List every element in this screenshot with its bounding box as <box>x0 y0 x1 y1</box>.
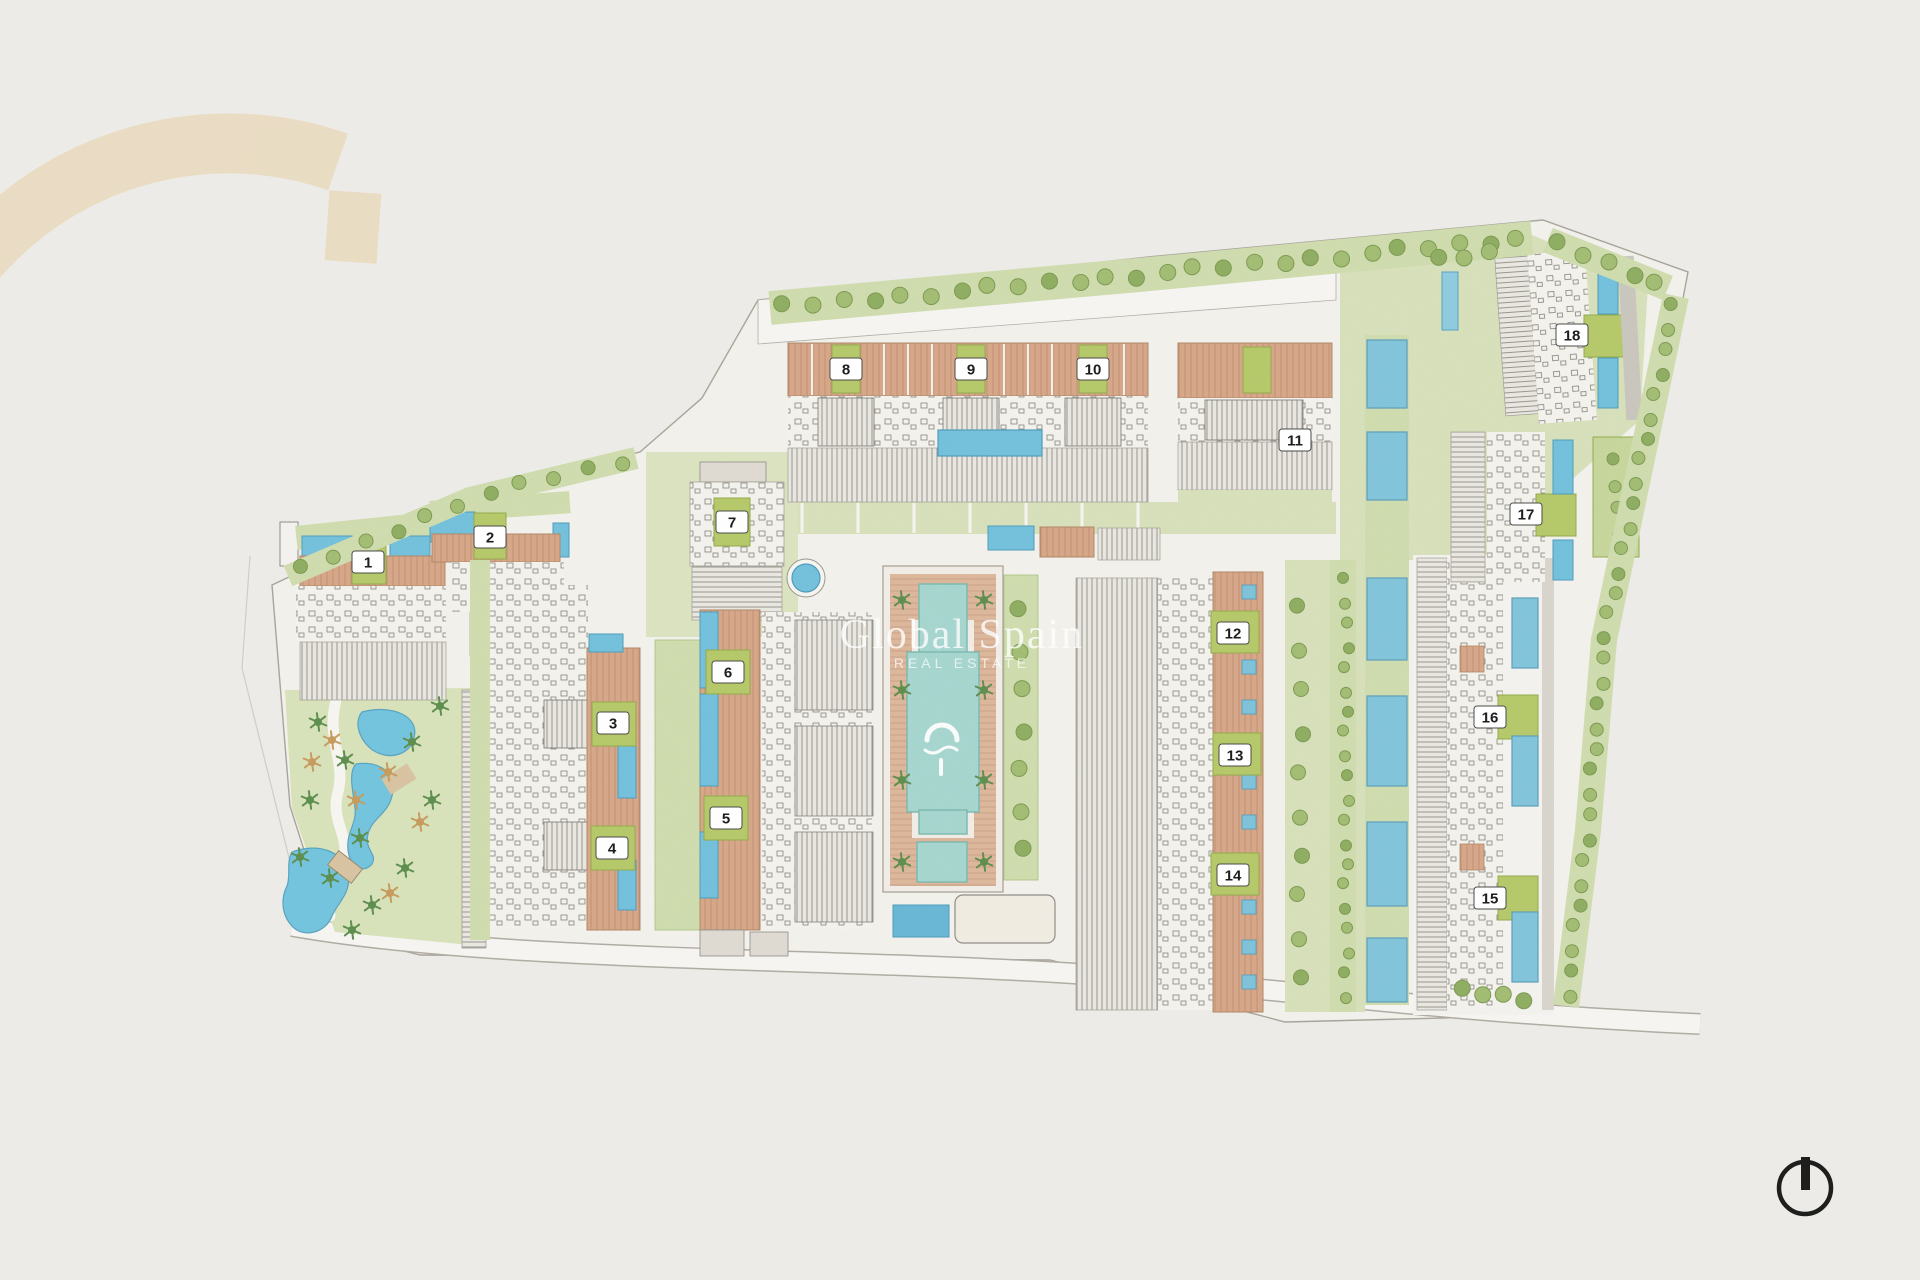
screenshot-root: 123456789101112131415161718 Global Spain… <box>0 0 1920 1280</box>
site-plan-image: 123456789101112131415161718 Global Spain… <box>0 0 1920 1280</box>
paper-grain-overlay <box>0 0 1920 1280</box>
